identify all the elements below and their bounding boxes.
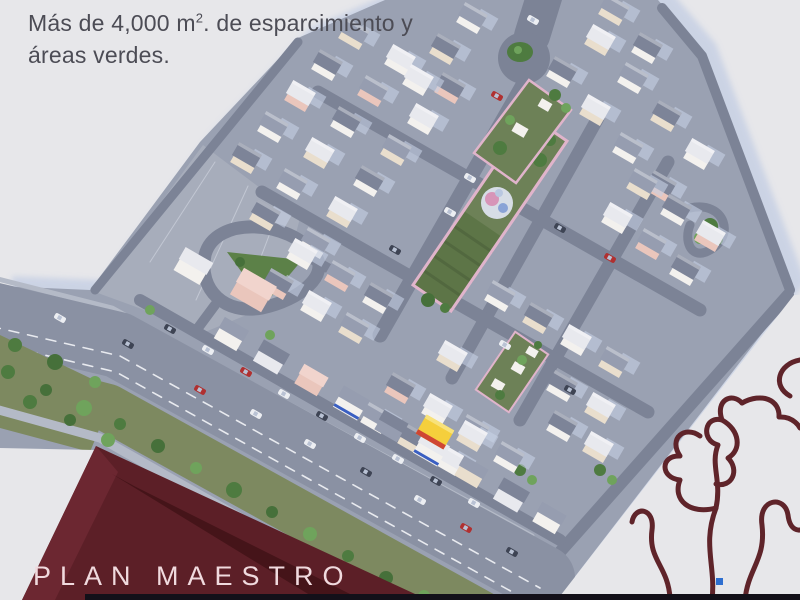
headline-text: Más de 4,000 m: [28, 10, 196, 36]
plan-title: PLAN MAESTRO: [33, 561, 353, 592]
slide: Más de 4,000 m2. de esparcimiento y área…: [0, 0, 800, 600]
bottom-bar: [85, 594, 800, 600]
blue-location-marker: [716, 578, 723, 585]
headline: Más de 4,000 m2. de esparcimiento y área…: [28, 8, 420, 71]
site-plan-svg: [0, 0, 800, 600]
